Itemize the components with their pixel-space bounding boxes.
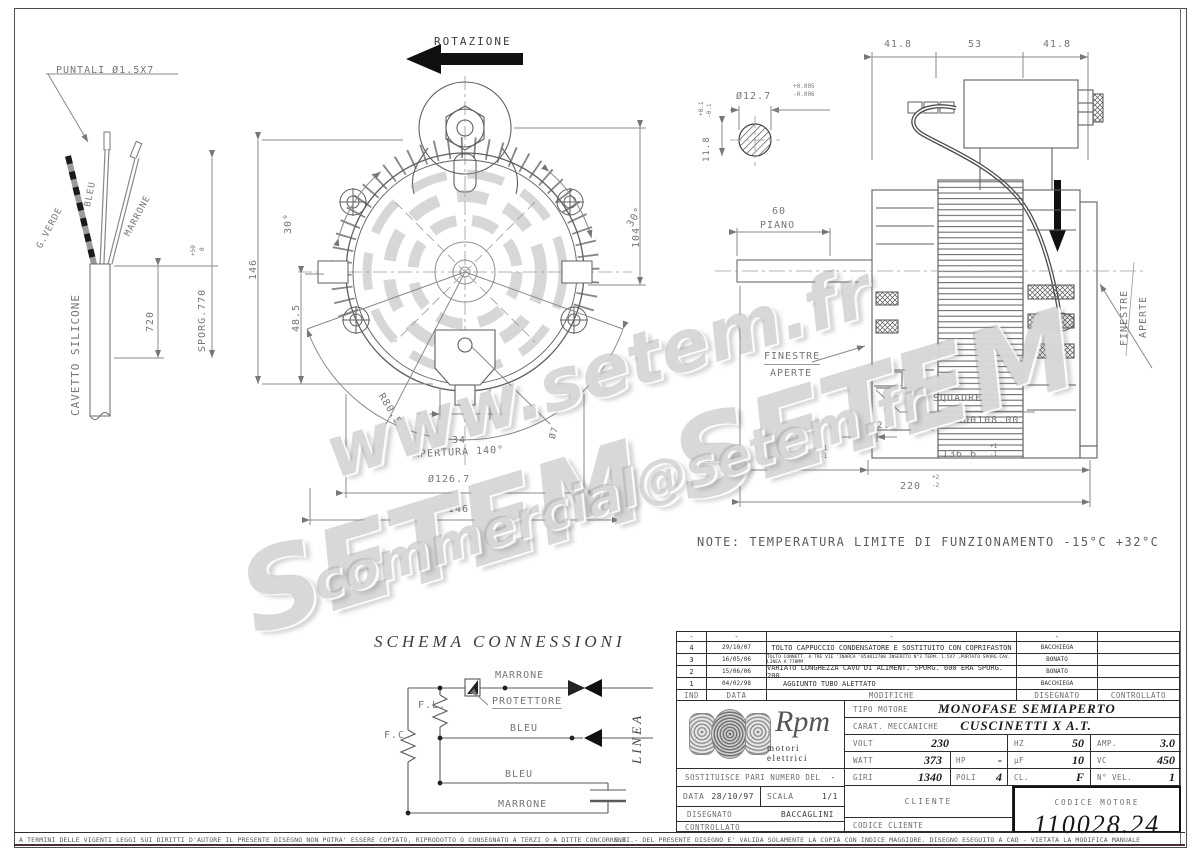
footer-strip: A TERMINI DELLE VIGENTI LEGGI SUI DIRITT… [14,832,1185,846]
rev-by: BONATO [1017,666,1098,678]
data-value: 28/10/97 [711,792,754,801]
uf-value: 10 [1072,753,1084,768]
cliente-cell: CLIENTE [845,786,1013,818]
vc-label: VC [1097,756,1107,765]
dim-o126-7: Ø126.7 [428,475,470,485]
line-arrows-icon [584,679,602,747]
dim-720: 720 [146,311,156,332]
revision-header-row: IND DATA MODIFICHE DISEGNATO CONTROLLATO [677,690,1179,701]
rev-check [1098,666,1179,678]
dim-34: 34 [452,436,466,446]
hp-value: - [998,753,1002,768]
poli-label: POLI [956,773,976,782]
dim-sporg-770: SPORG.770 [198,289,208,352]
sostituisce-value: - [831,773,836,782]
dim-o12-7-tol-minus: -0.006 [793,92,815,98]
rev-check [1098,642,1179,654]
dim-60: 60 [772,207,786,217]
dim-83-4: 83.4 [778,452,806,462]
rev-date: 29/10/07 [707,642,767,654]
rev-desc: AGGIUNTO TUBO ALETTATO [767,678,1017,690]
rev-ind: 3 [677,654,707,666]
schema-bleu-mid-label: BLEU [510,724,538,734]
rev-header-ind: IND [677,690,707,701]
dim-o12-7-tol-plus: +0.005 [793,84,815,90]
footer-right-text: N.B. - DEL PRESENTE DISEGNO E' VALIDA SO… [614,836,1140,844]
rev-header-modifiche: MODIFICHE [767,690,1017,701]
carat-value: CUSCINETTI X A.T. [960,718,1092,734]
revision-row-4: 4 29/10/07 TOLTO CAPPUCCIO CONDENSATORE … [677,642,1179,654]
schema-linea-label: LINEA [630,713,643,764]
rotation-arrow-icon [406,44,523,74]
volt-value: 230 [931,736,949,751]
dim-53: 53 [968,40,982,50]
rev-check [1098,632,1179,642]
vc-value: 450 [1157,753,1175,768]
rpm-logo-text: Rpm [775,705,830,739]
rev-by: BACCHIEGA [1017,642,1098,654]
dim-11-8-tol-minus: -0.1 [707,104,713,118]
scala-label: SCALA [767,792,794,801]
nvel-value: 1 [1169,770,1175,785]
amp-value: 3.0 [1160,736,1175,751]
rev-date: 15/06/06 [707,666,767,678]
dim-220: 220 [900,482,921,492]
dim-146-left: 146 [249,259,259,280]
puntali-label: PUNTALI Ø1.5X7 [56,66,154,76]
hz-value: 50 [1072,736,1084,751]
data-label: DATA [683,792,704,801]
giri-label: GIRI [853,773,873,782]
rev-by: BACCHIEGA [1017,678,1098,690]
data-scala-row: DATA 28/10/97 SCALA 1/1 [677,787,845,807]
dim-41-8-b: 41.8 [1043,40,1071,50]
hp-label: HP [956,756,966,765]
dim-136-6-tol-minus: -1 [990,452,997,458]
dim-83-4-tol-plus: +1 [820,446,827,452]
rev-desc: TOLTO CONNETT. A TRE VIE 'INARCA '854012… [767,654,1017,666]
sostituisce-label: SOSTITUISCE PARI NUMERO DEL [685,773,820,782]
controllato-label: CONTROLLATO [685,823,740,832]
revision-row-3: 3 16/05/06 TOLTO CONNETT. A TRE VIE 'INA… [677,654,1179,666]
volt-hz-amp-row: VOLT 230 HZ 50 AMP. 3.0 [845,735,1181,752]
dim-146-bottom: 146 [448,505,469,515]
carat-meccaniche-row: CARAT. MECCANICHE CUSCINETTI X A.T. [845,718,1181,735]
nvel-label: N° VEL. [1097,773,1132,782]
sostituisce-row: SOSTITUISCE PARI NUMERO DEL - [677,769,845,787]
giri-poli-cl-nvel-row: GIRI 1340 POLI 4 CL. F N° VEL. 1 [845,769,1181,786]
rev-desc: - [767,632,1017,642]
tipo-motore-value: MONOFASE SEMIAPERTO [938,701,1116,717]
schema-bleu-low-label: BLEU [505,770,533,780]
codice-motore-label: CODICE MOTORE [1055,798,1140,807]
codice-cliente-label: CODICE CLIENTE [853,821,923,830]
cl-label: CL. [1014,773,1029,782]
protettore-symbol [465,679,488,705]
dim-136-6: 136.6 [942,450,977,460]
dim-41-8-a: 41.8 [884,40,912,50]
disegnato-value: BACCAGLINI [781,810,834,819]
rev-check [1098,678,1179,690]
schema-fl-label: F.L. [418,701,446,711]
finestre-left-label-2: APERTE [770,369,812,379]
rev-ind: 1 [677,678,707,690]
cl-value: F [1076,770,1084,785]
schema-marrone-top-label: MARRONE [495,671,544,681]
shaft-section [722,106,830,166]
codice-motore-box: CODICE MOTORE 110028.24 [1013,786,1181,833]
dim-136-6-tol-plus: +1 [990,444,997,450]
rev-header-data: DATA [707,690,767,701]
finestre-right-label-2: APERTE [1139,296,1149,338]
hz-label: HZ [1014,739,1024,748]
temperature-note: NOTE: TEMPERATURA LIMITE DI FUNZIONAMENT… [697,536,1159,548]
amp-label: AMP. [1097,739,1117,748]
screw-lower-right [560,306,588,334]
watt-label: WATT [853,756,873,765]
giri-value: 1340 [918,770,942,785]
squadrette-label: SQUADRETTE [933,394,1003,404]
dim-2-3: 2.3 [877,422,896,431]
squadrette-cod-label: COD.300108.00 [928,416,1019,426]
rev-ind: 4 [677,642,707,654]
disegnato-label: DISEGNATO [687,810,732,819]
rev-ind: - [677,632,707,642]
schema-fc-label: F.C. [384,731,412,741]
cable-detail-drawing [28,58,238,438]
dim-11-8-tol-plus: +0.1 [699,102,705,116]
finestre-left-label-1: FINESTRE [764,352,820,365]
volt-label: VOLT [853,739,873,748]
revision-row-2: 2 15/06/06 VARIATO LUNGHEZZA CAVO DI ALI… [677,666,1179,678]
engineering-drawing-sheet: { "wm": { "line1": "www.setem.fr", "line… [0,0,1200,849]
rev-date: 16/05/06 [707,654,767,666]
rev-by: BONATO [1017,654,1098,666]
rev-check [1098,654,1179,666]
rev-desc: TOLTO CAPPUCCIO CONDENSATORE E SOSTITUIT… [767,642,1017,654]
rpm-logo-subtext: motori elettrici [767,743,844,763]
dim-sporg-tol-zero: 0 [200,247,206,251]
cliente-label: CLIENTE [905,797,953,806]
side-view-drawing [700,30,1180,512]
scala-value: 1/1 [822,792,838,801]
tipo-motore-label: TIPO MOTORE [853,705,908,714]
schema-protettore-label: PROTETTORE [492,697,562,709]
dim-11-8: 11.8 [703,136,712,162]
dim-30-left: 30° [284,213,294,234]
codice-cliente-cell: CODICE CLIENTE [845,818,1013,833]
air-flow-arrow-icon [1049,180,1066,252]
rotazione-label: ROTAZIONE [434,36,512,47]
carat-label: CARAT. MECCANICHE [853,722,938,731]
watt-hp-uf-vc-row: WATT 373 HP - µF 10 VC 450 [845,752,1181,769]
dim-220-tol-plus: +2 [932,475,939,481]
rev-by: - [1017,632,1098,642]
rpm-logo-icon [711,709,749,759]
rev-date: - [707,632,767,642]
uf-label: µF [1014,756,1024,765]
rev-ind: 2 [677,666,707,678]
title-block: - - - - 4 29/10/07 TOLTO CAPPUCCIO CONDE… [676,631,1180,832]
rev-date: 04/02/98 [707,678,767,690]
dim-220-tol-minus: -2 [932,483,939,489]
watt-value: 373 [924,753,942,768]
rev-header-disegnato: DISEGNATO [1017,690,1098,701]
schema-title: SCHEMA CONNESSIONI [374,633,626,650]
piano-label: PIANO [760,221,795,231]
screw-upper-right [556,188,584,216]
dim-83-4-tol-minus: -1 [820,454,827,460]
screw-lower-left [342,306,370,334]
dim-o12-7: Ø12.7 [736,92,771,102]
logo-area: Rpm motori elettrici [677,701,845,769]
rev-header-controllato: CONTROLLATO [1098,690,1179,701]
schema-marrone-bot-label: MARRONE [498,800,547,810]
footer-left-text: A TERMINI DELLE VIGENTI LEGGI SUI DIRITT… [19,836,634,844]
poli-value: 4 [996,770,1002,785]
dim-sporg-tol-plus: +50 [191,245,197,256]
cavetto-silicone-label: CAVETTO SILICONE [70,294,81,416]
dim-104: 104 [632,227,642,248]
dim-48-5: 48.5 [292,304,302,332]
revision-row-1: 1 04/02/98 AGGIUNTO TUBO ALETTATO BACCHI… [677,678,1179,690]
revision-row-dash: - - - - [677,632,1179,642]
rev-desc: VARIATO LUNGHEZZA CAVO DI ALIMENT. SPORG… [767,666,1017,678]
finestre-right-label-1: FINESTRE [1120,290,1130,346]
tipo-motore-row: TIPO MOTORE MONOFASE SEMIAPERTO [845,701,1181,718]
disegnato-row: DISEGNATO BACCAGLINI [677,807,845,822]
